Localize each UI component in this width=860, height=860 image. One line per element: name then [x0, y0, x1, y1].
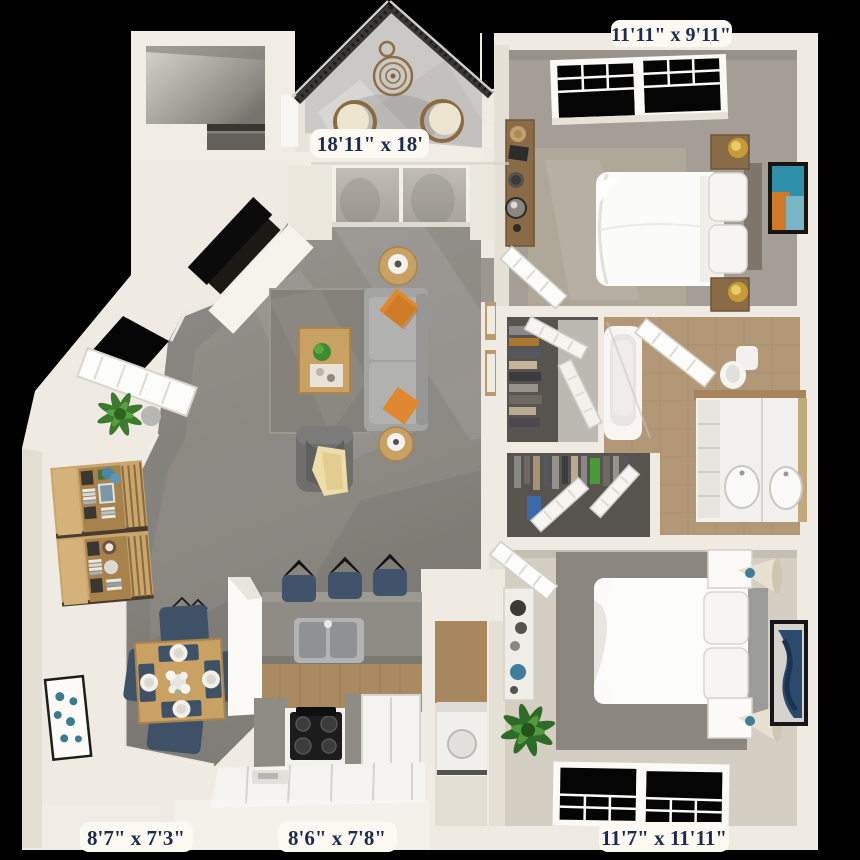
svg-text:8'7" x 7'3": 8'7" x 7'3"	[87, 826, 185, 850]
svg-text:11'7" x 11'11": 11'7" x 11'11"	[601, 826, 727, 850]
svg-text:8'6" x 7'8": 8'6" x 7'8"	[288, 826, 386, 850]
svg-text:18'11" x 18': 18'11" x 18'	[317, 132, 423, 156]
svg-text:11'11" x 9'11": 11'11" x 9'11"	[611, 24, 731, 46]
